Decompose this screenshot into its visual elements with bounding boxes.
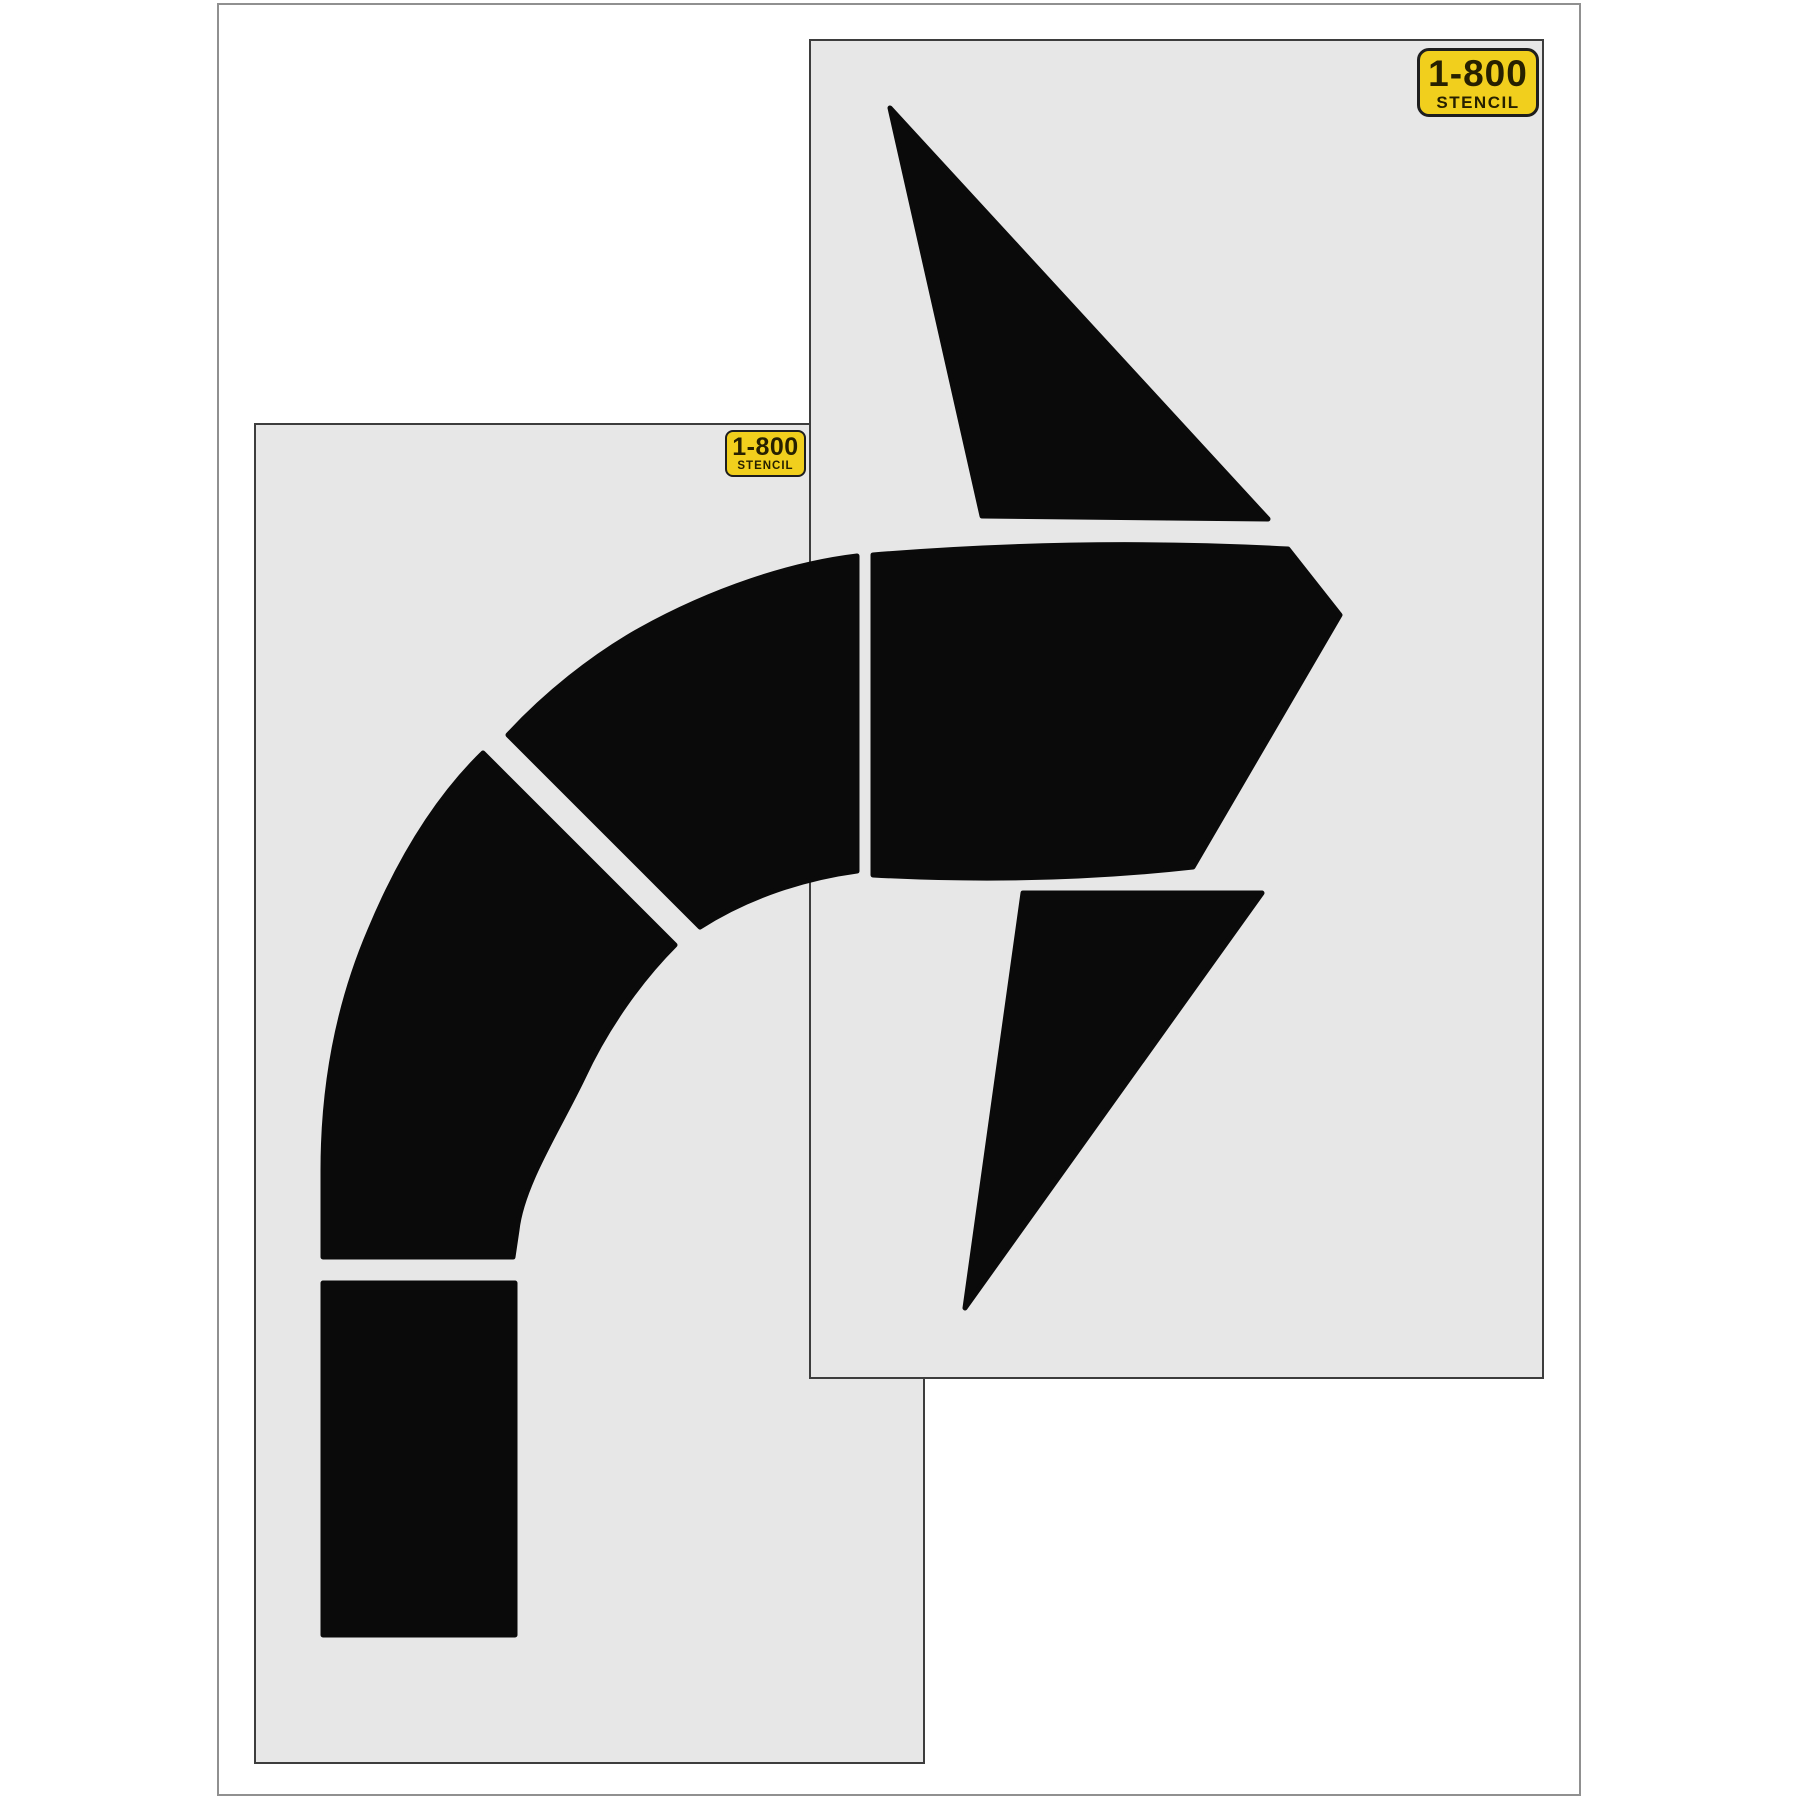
brand-badge-line2: STENCIL (1436, 94, 1519, 111)
brand-badge-small: 1-800 STENCIL (725, 430, 806, 477)
stencil-photo (0, 0, 1800, 1800)
brand-badge-line1: 1-800 (1428, 55, 1528, 92)
brand-badge-large: 1-800 STENCIL (1417, 48, 1539, 117)
brand-badge-line1: 1-800 (732, 435, 798, 460)
brand-badge-line2: STENCIL (737, 461, 793, 473)
product-photo-canvas: 1-800 STENCIL 1-800 STENCIL (0, 0, 1800, 1800)
shaft-bottom-bar-cutout (323, 1283, 515, 1635)
